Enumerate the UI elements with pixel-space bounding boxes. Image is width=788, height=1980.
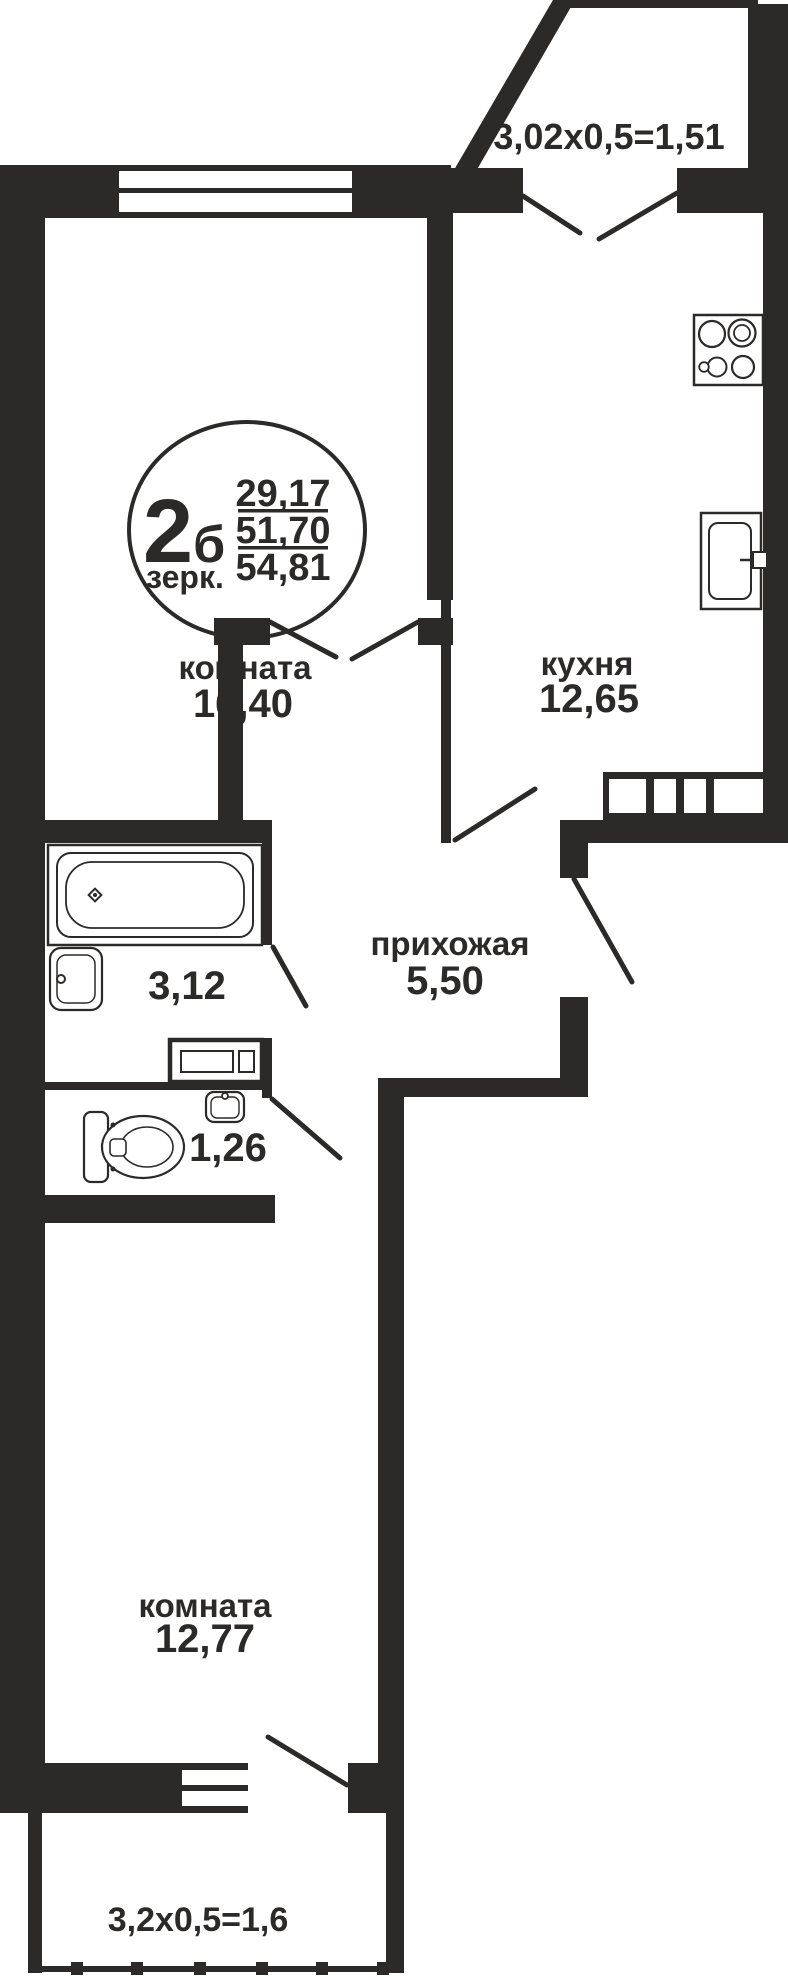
logo-floor-area: 51,70 bbox=[235, 510, 330, 552]
wall-bedroom-bottom-left bbox=[0, 1763, 182, 1813]
balcony-top-dimensions: 3,02x0,5=1,51 bbox=[493, 116, 724, 157]
wall-entrance-stub-top bbox=[560, 820, 588, 878]
kitchen-sink-icon bbox=[701, 513, 767, 609]
wall-balcony2-right bbox=[386, 1813, 404, 1973]
balcony-door-left-leaf bbox=[523, 196, 580, 233]
stove-icon bbox=[694, 315, 763, 385]
balcony-door-right-leaf bbox=[599, 193, 677, 239]
wc-door-leaf bbox=[272, 1099, 340, 1158]
balcony-bottom-dimensions: 3,2x0,5=1,6 bbox=[108, 1901, 289, 1939]
wc-area: 1,26 bbox=[189, 1126, 267, 1170]
wc-sink-icon bbox=[206, 1092, 244, 1122]
hallway-area: 5,50 bbox=[406, 959, 484, 1003]
bath-sink-icon bbox=[50, 948, 102, 1010]
bathroom-door-leaf bbox=[273, 947, 306, 1006]
living-door-right-leaf bbox=[352, 622, 418, 659]
living-room-area: 16,40 bbox=[193, 682, 293, 726]
wall-kitchen-bottom bbox=[588, 820, 788, 843]
wall-living-door-right bbox=[418, 618, 453, 645]
logo-mirror-label: зерк. bbox=[146, 559, 224, 595]
washing-machine-icon bbox=[170, 1040, 262, 1082]
wall-kitchen-top-right bbox=[677, 168, 763, 213]
kitchen-cabinets-icon bbox=[603, 772, 763, 820]
bedroom-balcony-door-leaf bbox=[268, 1737, 347, 1785]
living-room-label: комната bbox=[178, 649, 312, 686]
window-living bbox=[119, 171, 352, 212]
walls bbox=[0, 0, 788, 1973]
logo-living-area: 29,17 bbox=[235, 473, 330, 515]
floor-plan: 2б зерк. 29,17 51,70 54,81 3,02x0,5=1,51… bbox=[0, 0, 788, 1980]
wall-right-kitchen bbox=[763, 168, 788, 843]
kitchen-area: 12,65 bbox=[539, 677, 639, 721]
hallway-label: прихожая bbox=[370, 925, 529, 962]
wall-corridor-right bbox=[378, 1078, 404, 1813]
wall-balcony2-left bbox=[28, 1813, 42, 1973]
apartment-logo: 2б зерк. 29,17 51,70 54,81 bbox=[129, 422, 365, 638]
logo-total-area: 54,81 bbox=[235, 547, 330, 589]
kitchen-door-leaf bbox=[455, 789, 535, 840]
bathtub-icon bbox=[48, 845, 262, 945]
wall-bathroom-top bbox=[45, 820, 272, 843]
wall-divider-thick bbox=[427, 213, 453, 600]
wall-bedroom-bottom-right bbox=[348, 1763, 404, 1813]
wall-left-exterior bbox=[0, 165, 45, 1813]
balustrade bbox=[28, 1962, 404, 1975]
wall-bathroom-right bbox=[262, 843, 272, 945]
wall-kitchen-top-left bbox=[426, 168, 523, 213]
wall-living-door-left bbox=[214, 618, 270, 645]
toilet-icon bbox=[84, 1112, 184, 1182]
wall-hallway-bottom bbox=[404, 1078, 588, 1097]
bedroom-area: 12,77 bbox=[155, 1617, 255, 1661]
room-labels: 3,02x0,5=1,51 комната 16,40 кухня 12,65 … bbox=[108, 116, 725, 1939]
bathroom-area: 3,12 bbox=[148, 964, 226, 1008]
window-bedroom bbox=[182, 1763, 248, 1813]
wall-balcony-top-thin bbox=[553, 0, 758, 8]
entrance-door-leaf bbox=[574, 879, 632, 982]
